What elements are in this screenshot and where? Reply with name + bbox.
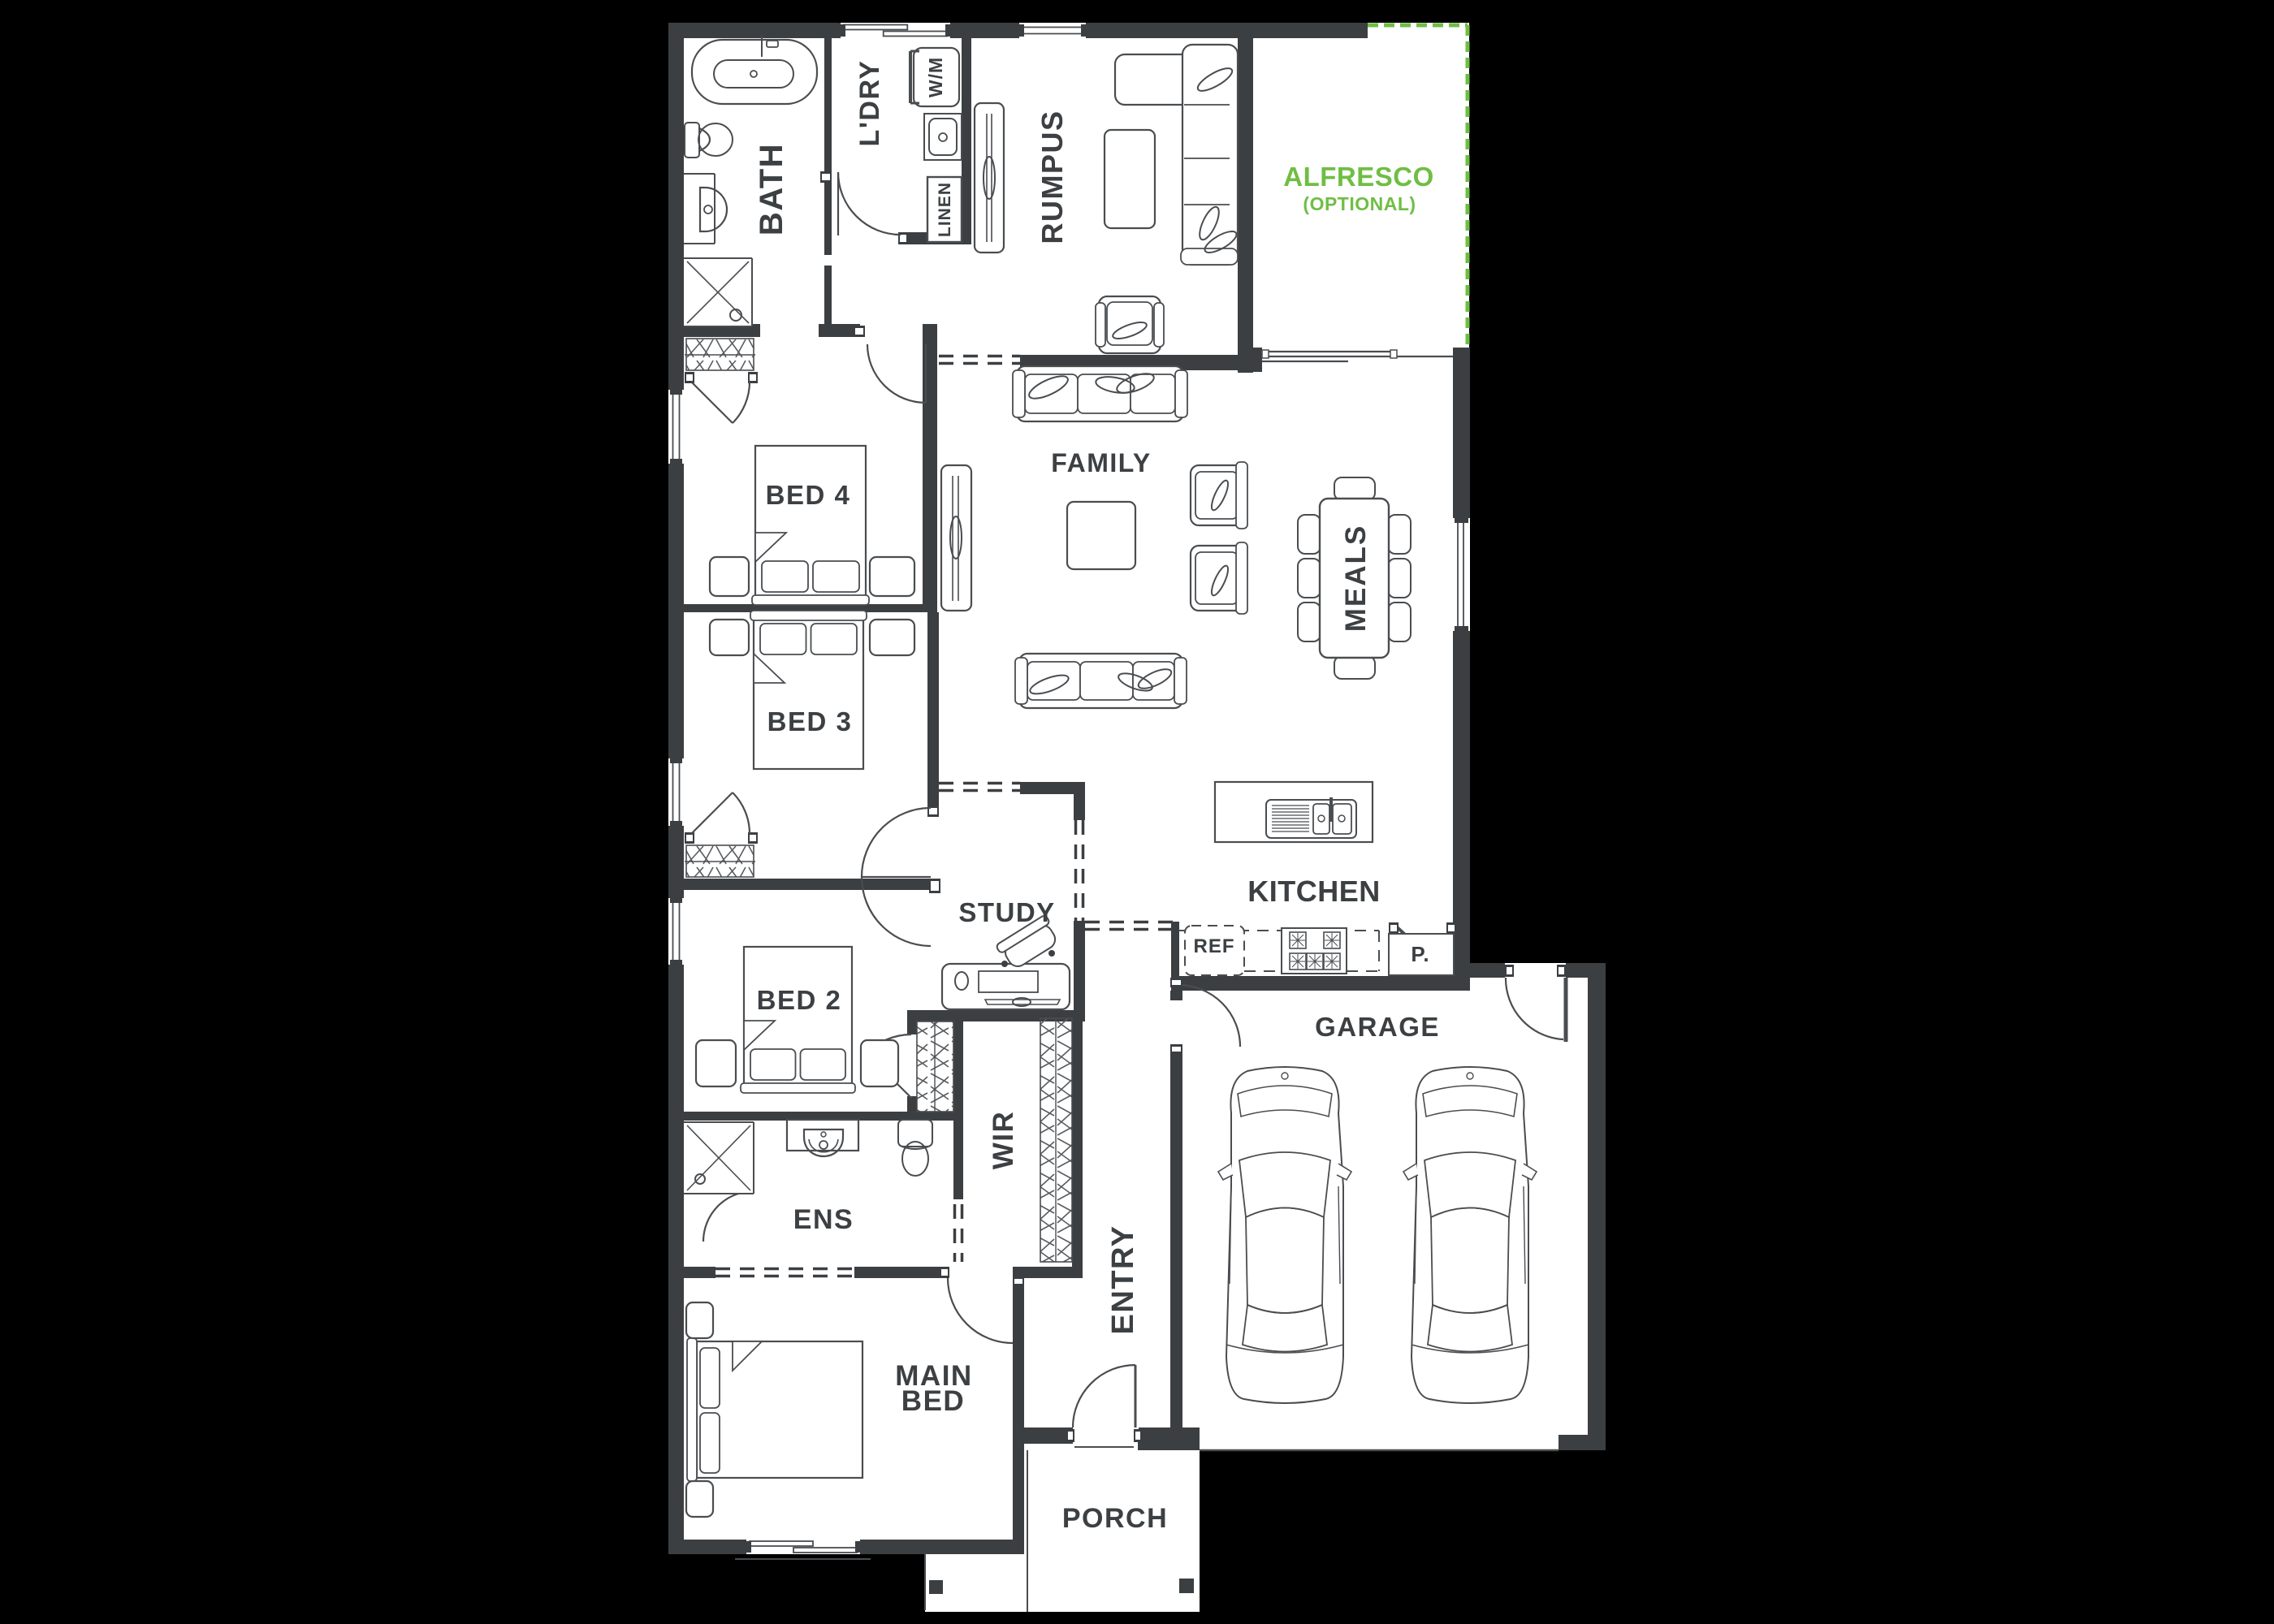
svg-text:(OPTIONAL): (OPTIONAL) <box>1303 193 1416 214</box>
svg-text:W/M: W/M <box>925 57 946 97</box>
svg-text:LINEN: LINEN <box>936 182 954 237</box>
svg-text:ENTRY: ENTRY <box>1106 1225 1140 1335</box>
svg-text:ALFRESCO: ALFRESCO <box>1283 162 1434 192</box>
svg-text:MEALS: MEALS <box>1340 525 1372 633</box>
svg-text:L'DRY: L'DRY <box>854 60 885 147</box>
svg-text:BATH: BATH <box>754 143 789 235</box>
svg-text:FAMILY: FAMILY <box>1051 448 1151 477</box>
svg-text:BED: BED <box>901 1385 965 1417</box>
svg-text:REF: REF <box>1194 935 1235 957</box>
svg-text:WIR: WIR <box>988 1111 1019 1170</box>
svg-text:RUMPUS: RUMPUS <box>1035 110 1069 244</box>
svg-text:STUDY: STUDY <box>958 897 1055 927</box>
svg-text:BED 3: BED 3 <box>767 706 853 736</box>
svg-text:BED 4: BED 4 <box>766 480 851 510</box>
svg-text:BED 2: BED 2 <box>757 985 842 1015</box>
svg-text:P.: P. <box>1411 942 1429 966</box>
svg-text:KITCHEN: KITCHEN <box>1247 875 1381 908</box>
svg-text:PORCH: PORCH <box>1062 1503 1168 1534</box>
svg-text:GARAGE: GARAGE <box>1315 1012 1440 1042</box>
svg-text:ENS: ENS <box>793 1204 854 1235</box>
